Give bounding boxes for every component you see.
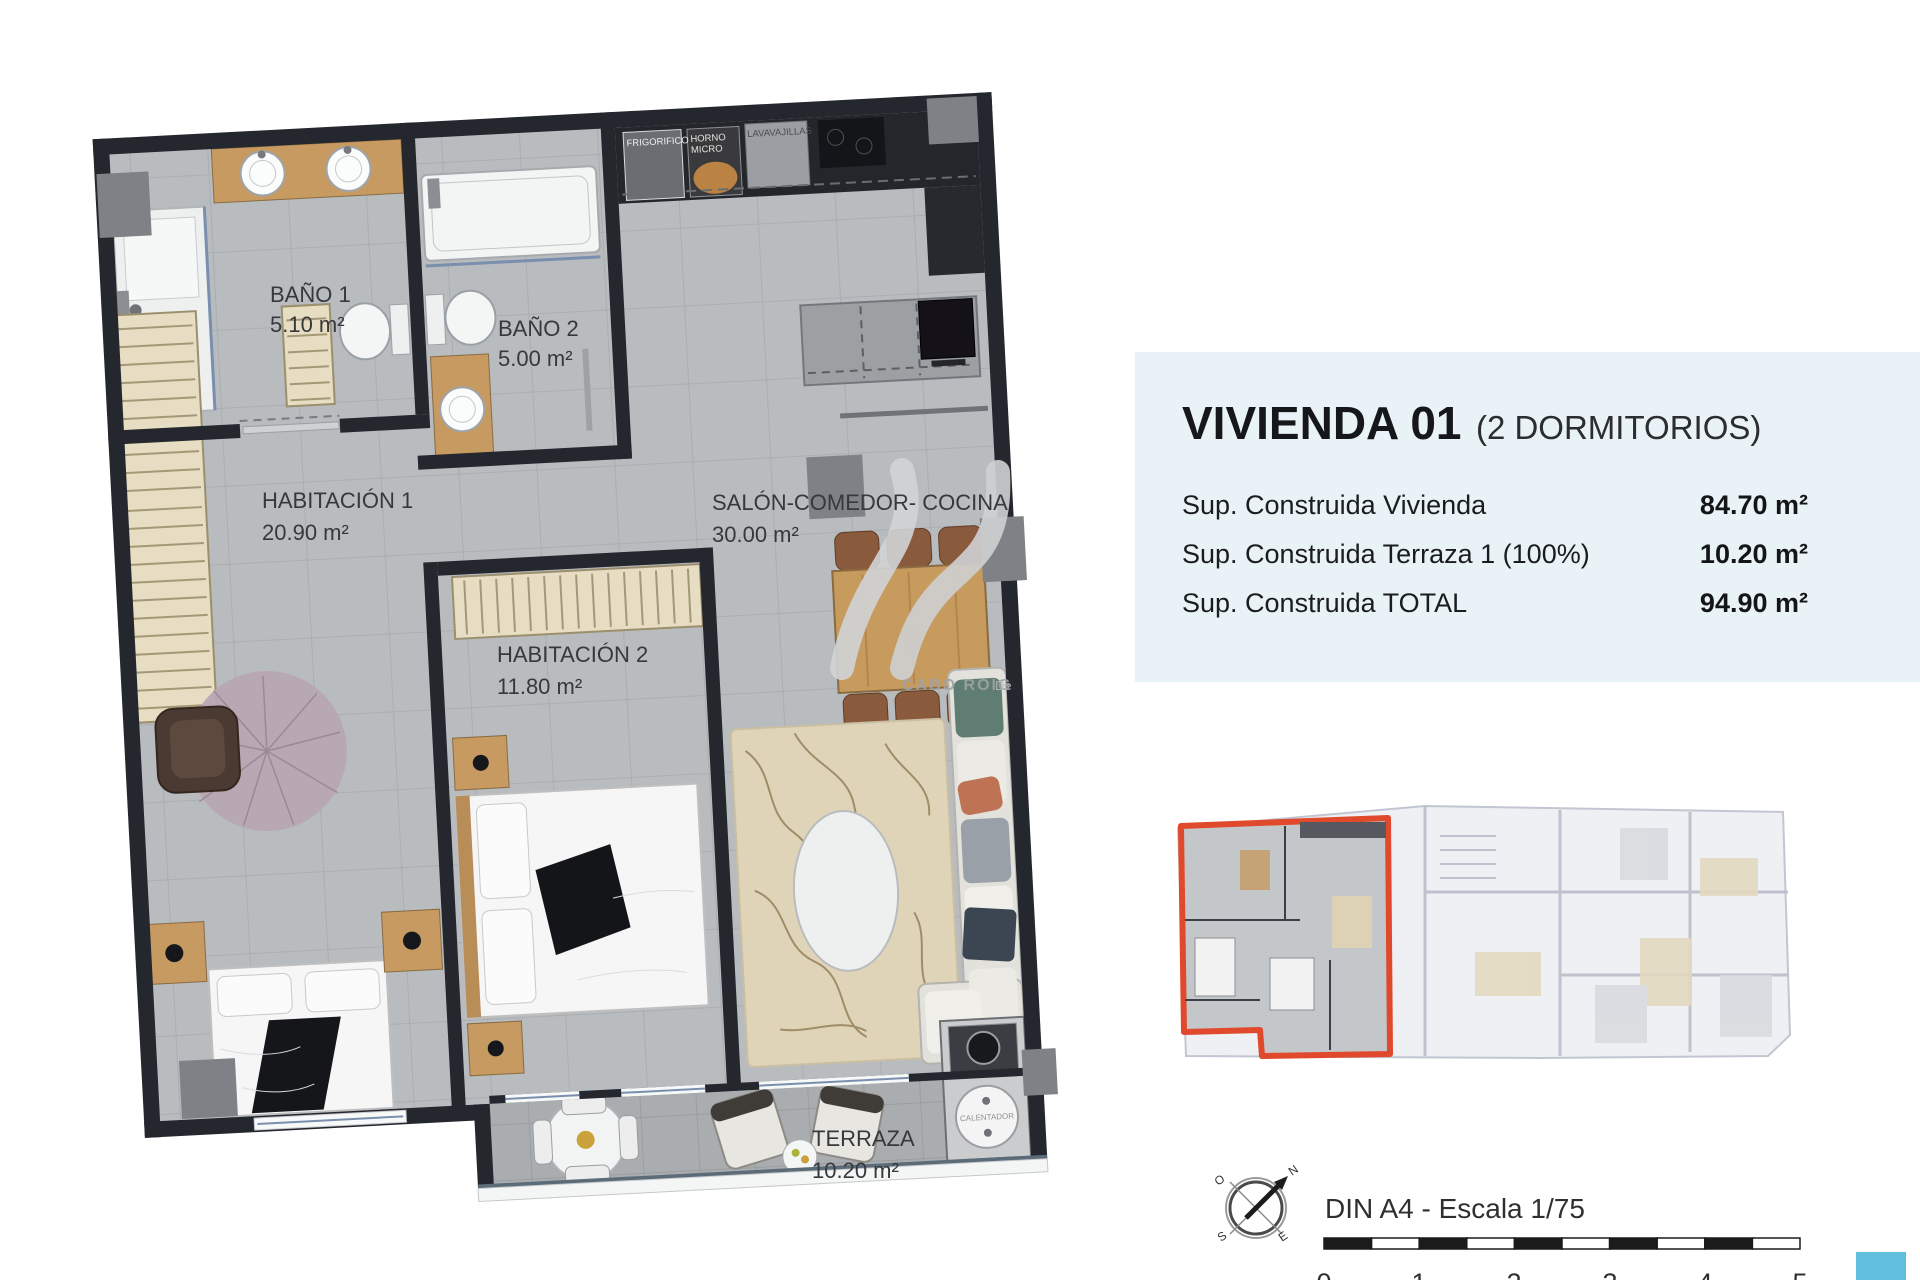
tv-icon [918,298,975,359]
surface-label: Sup. Construida Vivienda [1182,490,1486,521]
terrace-chair [533,1120,553,1165]
mini-rug [1332,896,1372,948]
tall-cabinet [924,185,985,276]
toilet-tank [425,294,446,345]
scale-bar: DIN A4 - Escala 1/75 0 1 2 3 4 5 [1316,1193,1807,1280]
room-area-hab1: 20.90 m² [262,520,349,545]
surface-value: 10.20 m² [1700,539,1808,570]
tub-fixture-icon [427,178,441,209]
scale-tick-0: 0 [1316,1268,1331,1280]
room-label-terraza: TERRAZA [812,1126,915,1151]
room-area-bano2: 5.00 m² [498,346,573,371]
unit-title: VIVIENDA 01 [1182,397,1462,449]
scale-ticks: 0 1 2 3 4 5 [1316,1268,1807,1280]
room-area-bano1: 5.10 m² [270,312,345,337]
room-area-hab2: 11.80 m² [497,674,582,699]
compass-needle [1246,1184,1280,1218]
compass: N O S E [1212,1162,1301,1244]
room-label-hab2: HABITACIÓN 2 [497,642,648,667]
corner-color-swatch [1856,1252,1906,1280]
toilet-tank [390,304,411,355]
pillow [305,968,381,1012]
compass-e: E [1276,1228,1291,1244]
mini-wood [1240,850,1270,890]
scale-segments [1324,1238,1800,1249]
scale-tick-1: 1 [1411,1268,1426,1280]
compass-o: O [1212,1172,1228,1189]
compass-s: S [1215,1228,1230,1244]
mini-bed [1270,958,1314,1010]
unit-title-row: VIVIENDA 01 (2 DORMITORIOS) [1182,396,1808,450]
pillow [476,803,531,899]
surface-row: Sup. Construida TOTAL 94.90 m² [1182,588,1808,637]
unit-subtitle: (2 DORMITORIOS) [1476,409,1761,446]
surface-table: Sup. Construida Vivienda 84.70 m² Sup. C… [1182,490,1808,637]
scale-tick-5: 5 [1792,1268,1807,1280]
cooktop [818,117,886,168]
surface-value: 94.90 m² [1700,588,1808,619]
surface-row: Sup. Construida Vivienda 84.70 m² [1182,490,1808,539]
room-label-bano1: BAÑO 1 [270,282,351,307]
unit-info-panel: VIVIENDA 01 (2 DORMITORIOS) Sup. Constru… [1135,352,1920,682]
surface-row: Sup. Construida Terraza 1 (100%) 10.20 m… [1182,539,1808,588]
highlighted-unit [1181,818,1390,1056]
pillow [217,973,293,1017]
terrace-chair [618,1115,638,1160]
washer-drum [967,1031,1001,1065]
double-bed [455,784,708,1018]
brochure-page: CALENTADOR [0,0,1920,1280]
surface-value: 84.70 m² [1700,490,1808,521]
surface-label: Sup. Construida TOTAL [1182,588,1467,619]
room-area-salon: 30.00 m² [712,522,799,547]
throw-navy [962,907,1017,962]
scale-title: DIN A4 - Escala 1/75 [1325,1193,1585,1224]
pillow [482,908,537,1004]
bathtub [421,166,600,261]
sink-icon [439,386,485,432]
scale-tick-3: 3 [1602,1268,1617,1280]
armchair-cushion [169,718,226,779]
room-area-terraza: 10.20 m² [812,1158,899,1183]
room-label-bano2: BAÑO 2 [498,316,579,341]
wardrobe [452,564,703,639]
watermark-suffix: De [995,678,1012,693]
scale-tick-4: 4 [1697,1268,1712,1280]
surface-label: Sup. Construida Terraza 1 (100%) [1182,539,1590,570]
compass-n: N [1286,1162,1301,1178]
oven-label-2: MICRO [691,143,723,156]
key-plan [1178,806,1790,1058]
mini-kitchen [1300,822,1386,838]
room-label-hab1: HABITACIÓN 1 [262,488,413,513]
room-label-salon: SALÓN-COMEDOR- COCINA [712,490,1008,515]
cushion-grey [960,817,1011,883]
lounger [809,1085,885,1164]
scale-tick-2: 2 [1506,1268,1521,1280]
heater-closet: CALENTADOR [940,1017,1031,1161]
mini-bed [1195,938,1235,996]
